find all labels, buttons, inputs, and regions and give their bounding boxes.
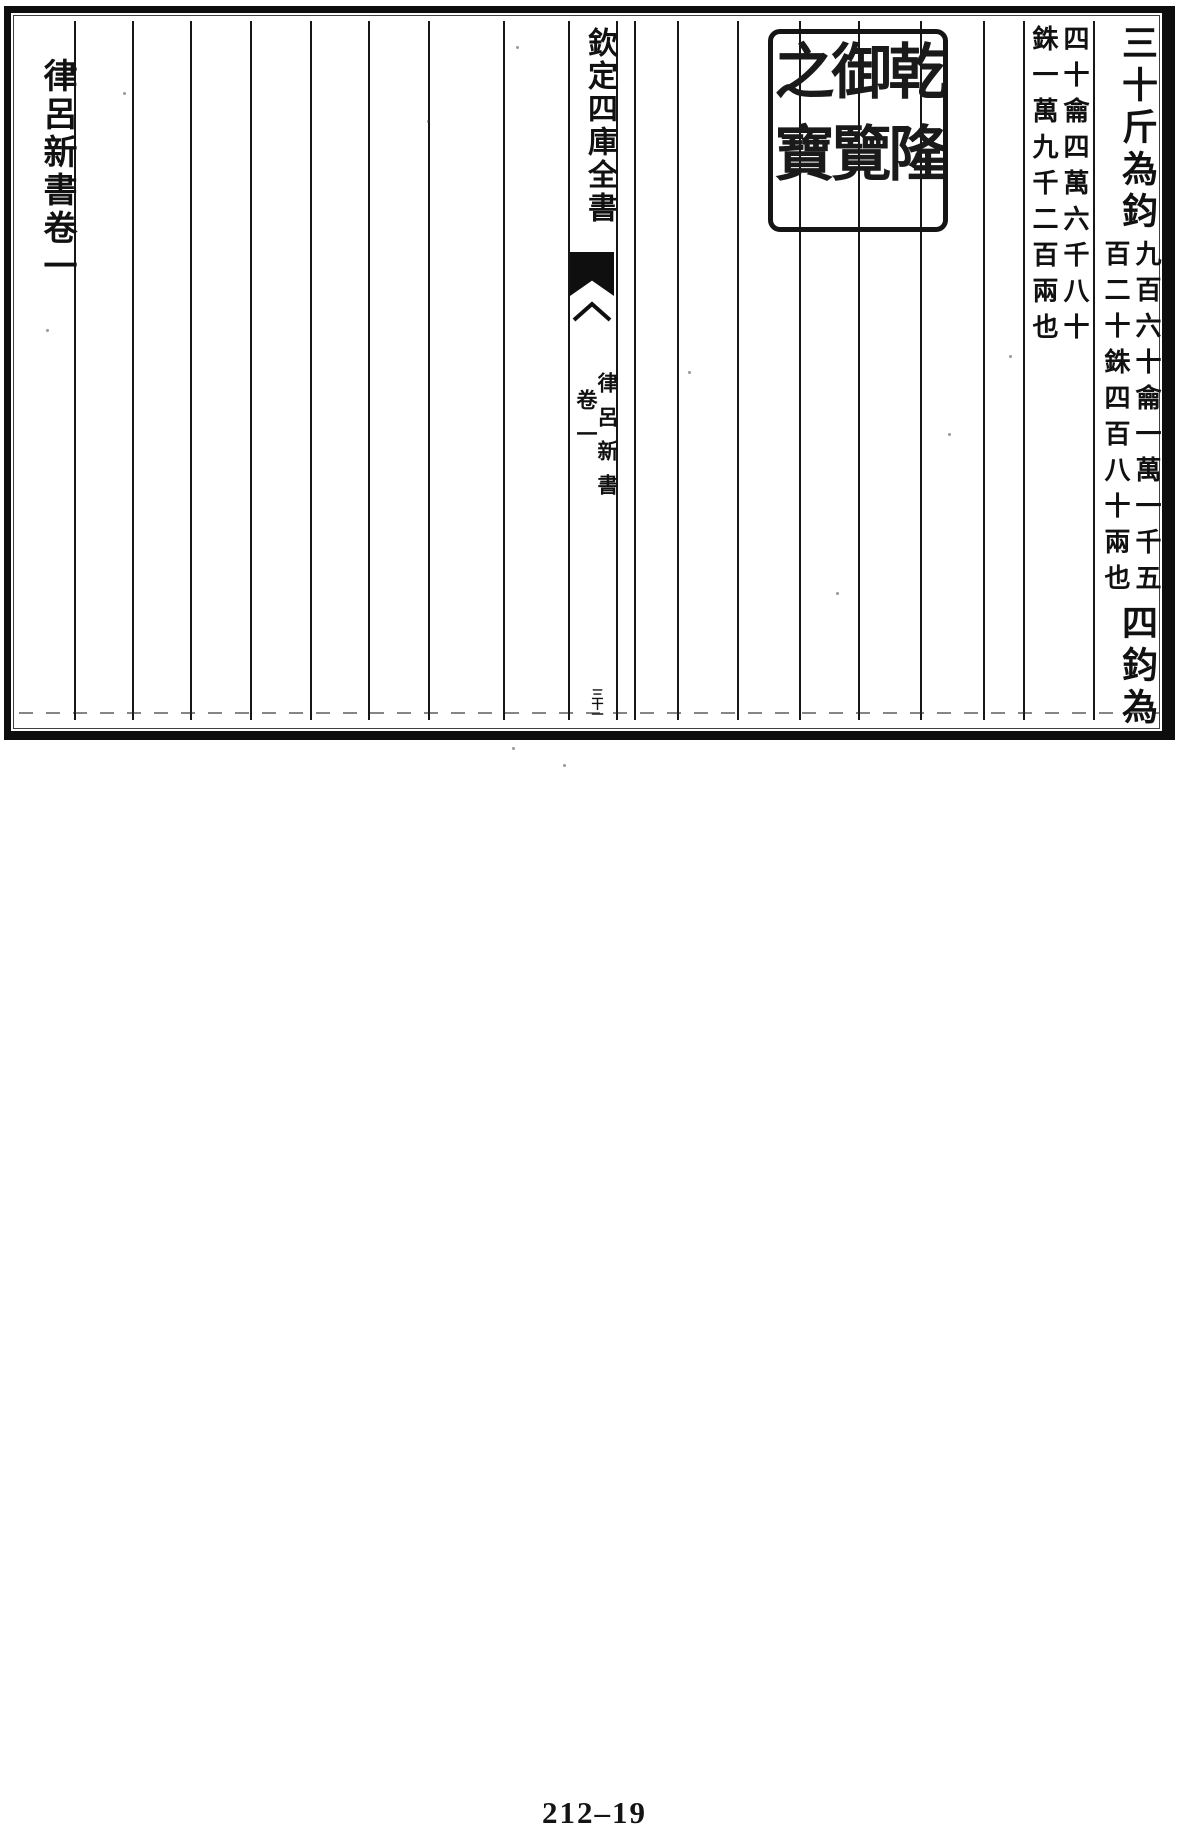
scan-speck xyxy=(563,764,566,767)
fishtail-notch xyxy=(570,274,614,296)
fishtail-mark xyxy=(570,252,614,274)
scan-speck xyxy=(512,747,515,750)
banxin-title: 欽定四庫全書 xyxy=(577,27,621,225)
book-page-frame: 律呂新書卷一 欽定四庫全書 律呂新書 卷一 三十一 乾隆御覽之寶 四十龠四萬六千… xyxy=(4,6,1175,740)
scan-speck xyxy=(516,46,519,49)
imperial-seal: 乾隆御覽之寶 xyxy=(768,29,948,232)
column-rule xyxy=(737,21,739,720)
column-rule xyxy=(132,21,134,720)
seal-characters: 乾隆御覽之寶 xyxy=(768,40,946,204)
scanned-book-page: { "content": { "right_page": { "column_1… xyxy=(0,0,1181,1841)
column-rule xyxy=(503,21,505,720)
column-rule xyxy=(1093,21,1095,720)
scan-speck xyxy=(46,329,49,332)
scan-speck xyxy=(688,371,691,374)
column-rule xyxy=(310,21,312,720)
column-rule xyxy=(983,21,985,720)
scan-speck xyxy=(836,592,839,595)
column-rule xyxy=(368,21,370,720)
main-text-bottom: 四鈞為石 xyxy=(1111,604,1163,740)
column-rule xyxy=(677,21,679,720)
footer-page-number: 212–19 xyxy=(542,1795,647,1831)
column-rule xyxy=(428,21,430,720)
column-rule xyxy=(250,21,252,720)
scan-speck xyxy=(1009,355,1012,358)
column-rule xyxy=(190,21,192,720)
scan-speck xyxy=(948,433,951,436)
main-text-top: 三十斤為鈞 xyxy=(1111,24,1163,234)
column-rule xyxy=(634,21,636,720)
scan-speck xyxy=(123,92,126,95)
volume-heading-left: 律呂新書卷一 xyxy=(32,58,81,286)
chevron-icon xyxy=(570,299,614,323)
banxin-volume: 卷一 xyxy=(571,389,601,457)
scan-speck xyxy=(427,120,430,123)
annotation-col1-left: 百二十銖四百八十兩也 xyxy=(1097,240,1134,600)
annotation-col2-left: 銖一萬九千二百兩也 xyxy=(1025,25,1062,349)
column-rule xyxy=(568,21,570,720)
leaf-number: 三十一 xyxy=(589,688,606,718)
